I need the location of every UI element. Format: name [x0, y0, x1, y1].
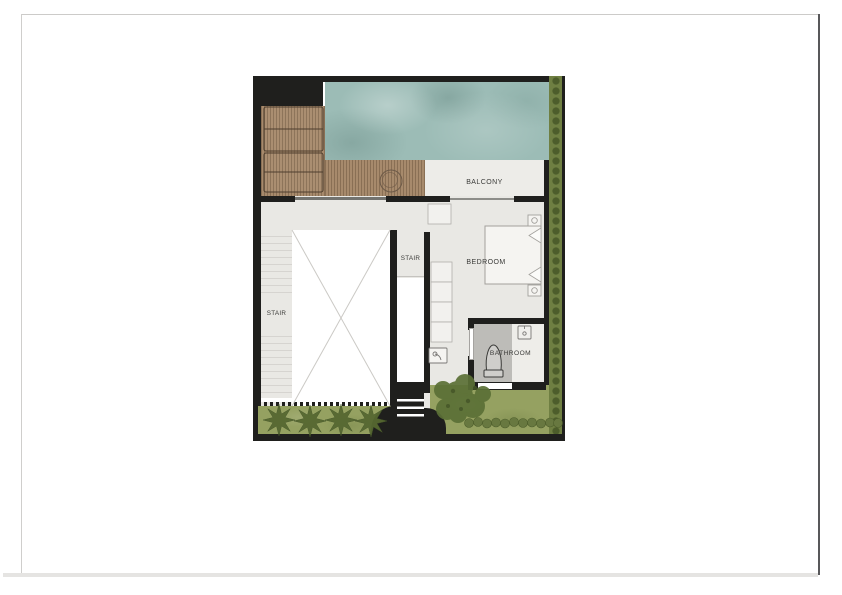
bedroom-label: BEDROOM	[456, 255, 516, 269]
page-border-bottom	[3, 573, 818, 577]
bathroom-sink-icon	[518, 326, 531, 339]
star-plant-icon	[263, 404, 387, 437]
bathroom-label: BATHROOM	[474, 346, 547, 360]
document-viewer: { "page": { "background": "#ffffff", "bo…	[0, 0, 842, 595]
void-cross-icon	[292, 230, 390, 406]
stair-center-label: STAIR	[397, 252, 424, 264]
tree-icon	[434, 374, 491, 423]
page-border-right	[818, 14, 820, 575]
stair-left-label: STAIR	[261, 307, 292, 320]
lounger-icon	[264, 107, 323, 192]
planter-pot-icon	[380, 170, 402, 192]
bush-row-icon	[465, 418, 563, 429]
hall-washbasin-icon	[429, 348, 447, 363]
wardrobe-icon	[428, 204, 452, 342]
page-border-left	[21, 14, 22, 576]
page-border-top	[21, 14, 819, 15]
balcony-label: BALCONY	[425, 174, 544, 190]
floor-plan: BALCONY BEDROOM BATHROOM STAIR STAIR	[253, 76, 565, 441]
